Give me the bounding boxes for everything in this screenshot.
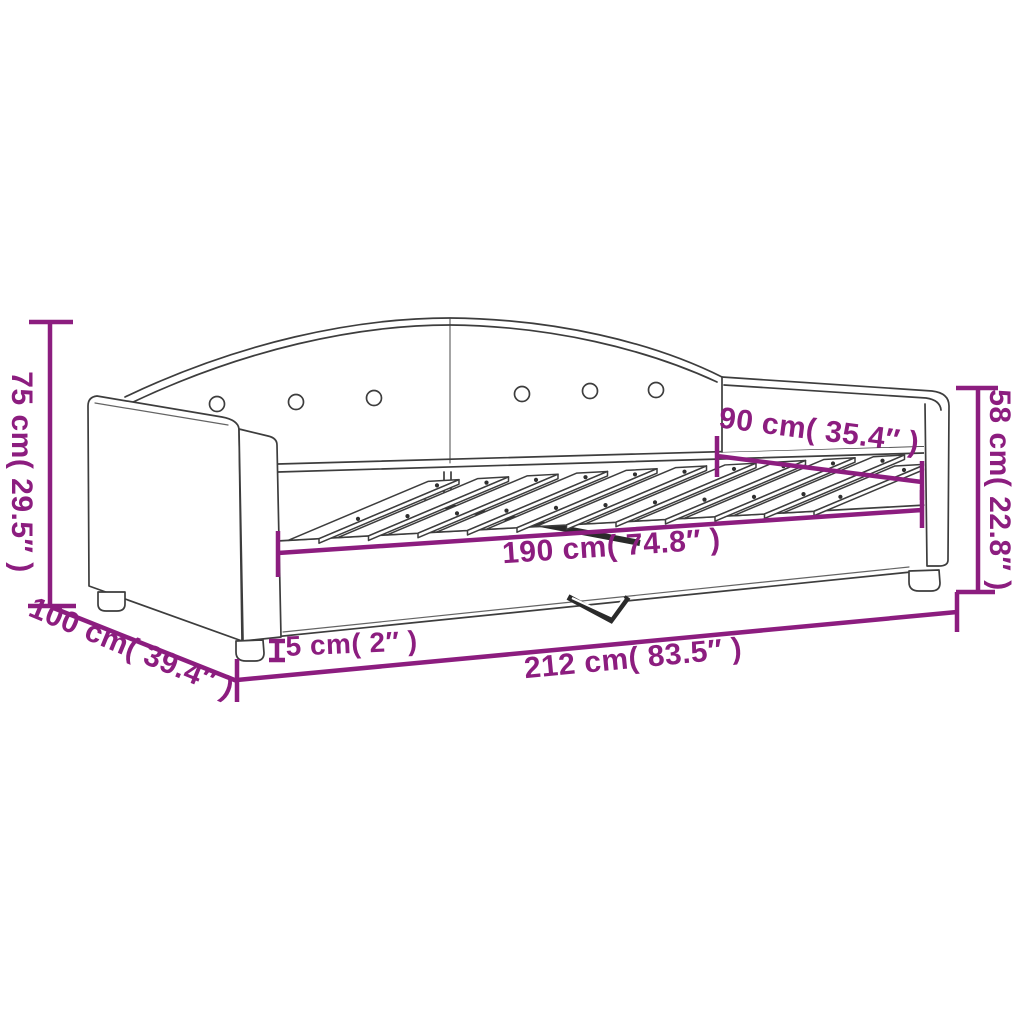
foot-right bbox=[909, 570, 940, 591]
dimension-leg-height: 5 cm( 2″ ) bbox=[269, 625, 418, 662]
foot-back-left bbox=[98, 592, 125, 611]
leg-height-label: 5 cm( 2″ ) bbox=[285, 625, 418, 662]
length-total-label: 212 cm( 83.5″ ) bbox=[523, 632, 744, 685]
dimension-diagram: 75 cm( 29.5″ ) 100 cm( 39.4″ ) 212 cm( 8… bbox=[0, 0, 1024, 1024]
dimension-height-arm: 58 cm( 22.8″ ) bbox=[956, 388, 1016, 592]
daybed bbox=[88, 318, 949, 661]
slat-length-label: 190 cm( 74.8″ ) bbox=[501, 523, 721, 570]
daybed-line-drawing: 75 cm( 29.5″ ) 100 cm( 39.4″ ) 212 cm( 8… bbox=[0, 0, 1024, 1024]
foot-front-left bbox=[236, 640, 264, 661]
height-arm-label: 58 cm( 22.8″ ) bbox=[983, 389, 1016, 590]
tufting-buttons bbox=[210, 383, 664, 412]
height-total-label: 75 cm( 29.5″ ) bbox=[5, 371, 38, 572]
dimension-height-total: 75 cm( 29.5″ ) bbox=[5, 322, 76, 606]
